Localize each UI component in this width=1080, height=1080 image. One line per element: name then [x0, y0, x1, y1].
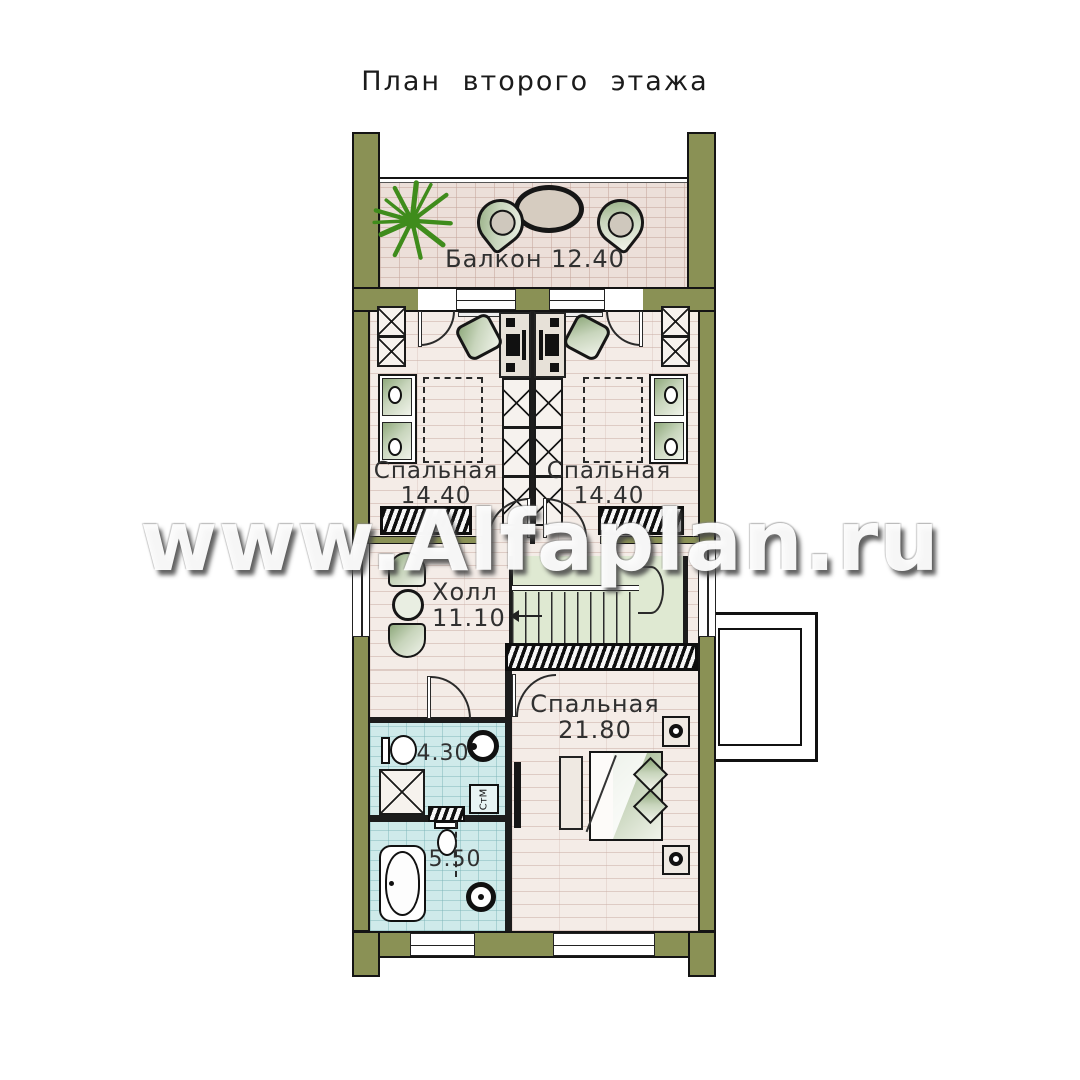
toilet-tank-upper — [381, 737, 390, 764]
balcony-door-leaf-left — [418, 311, 422, 347]
closet-center-r1 — [534, 378, 563, 428]
bed-left — [378, 374, 417, 464]
floor-plan-canvas: План второго этажа — [0, 0, 1080, 1080]
balcony-table — [514, 185, 584, 233]
master-label: Спальная21.80 — [525, 692, 665, 744]
sink-lower — [466, 882, 496, 912]
pier-bottom-left — [352, 931, 380, 977]
tv-icon — [514, 762, 521, 828]
sink-upper — [467, 730, 499, 762]
washing-machine: СтМ — [469, 784, 499, 814]
bath-divider-hatch — [428, 806, 465, 822]
balcony-window-left — [456, 289, 516, 310]
wardrobe-right-2 — [661, 336, 690, 367]
desk-left — [499, 312, 531, 378]
hall-table — [392, 589, 424, 621]
watermark: www.Alfaplan.ru — [0, 492, 1080, 590]
bed-right-outline — [583, 377, 643, 463]
balcony-label: Балкон 12.40 — [430, 247, 640, 273]
wardrobe-left-2 — [377, 336, 406, 367]
balcony-window-right — [549, 289, 605, 310]
page-title: План второго этажа — [330, 66, 740, 97]
bottom-window-left — [410, 933, 475, 956]
balcony-door-leaf-right — [639, 311, 643, 347]
dresser — [559, 756, 583, 830]
wardrobe-left-1 — [377, 306, 406, 337]
balcony-door-opening-right — [605, 289, 643, 310]
closet-center-l2 — [502, 427, 531, 477]
stair-arrow-shaft — [516, 615, 542, 617]
bathtub — [379, 845, 426, 922]
nightstand-top — [662, 716, 690, 747]
bed-right — [649, 374, 688, 464]
bath-lower-partition — [455, 822, 457, 877]
closet-center-l1 — [502, 378, 531, 428]
shower — [379, 769, 425, 815]
wall-bath-master — [505, 668, 512, 931]
wall-bottom — [352, 931, 716, 958]
washing-machine-label: СтМ — [479, 785, 490, 815]
bay-outline-inner — [718, 628, 802, 746]
pier-bottom-right — [688, 931, 716, 977]
desk-right — [534, 312, 566, 378]
bed-left-outline — [423, 377, 483, 463]
bottom-window-right — [553, 933, 655, 956]
stair-steps — [512, 592, 642, 643]
wardrobe-right-1 — [661, 306, 690, 337]
balcony-door-opening-left — [418, 289, 456, 310]
nightstand-bottom — [662, 845, 690, 875]
stair-guard-hatch — [505, 643, 698, 671]
stair-arrow-head — [510, 610, 519, 622]
pier-top-right — [687, 132, 716, 289]
